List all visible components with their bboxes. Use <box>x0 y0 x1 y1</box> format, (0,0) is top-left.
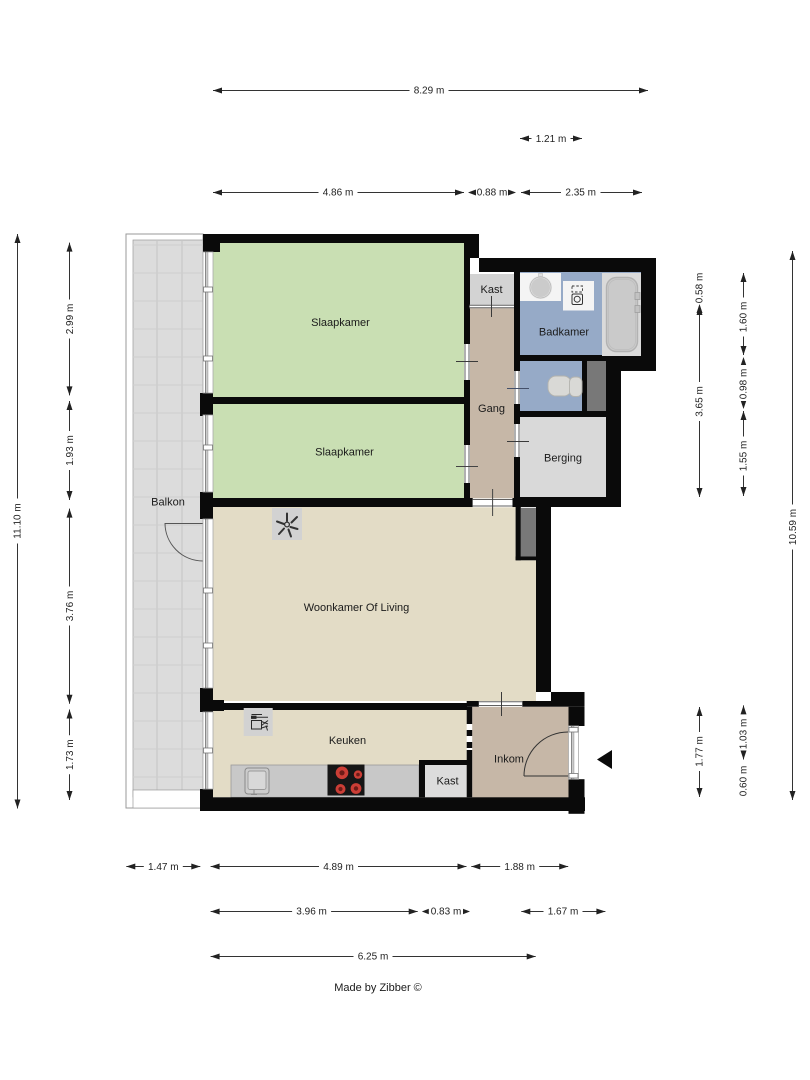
svg-text:8.29 m: 8.29 m <box>414 86 445 97</box>
svg-text:1.03 m: 1.03 m <box>739 719 750 750</box>
svg-text:4.86 m: 4.86 m <box>323 188 354 199</box>
svg-text:0.83 m: 0.83 m <box>431 907 462 918</box>
svg-text:1.60 m: 1.60 m <box>739 302 750 333</box>
svg-text:Balkon: Balkon <box>151 497 185 509</box>
svg-text:0.60 m: 0.60 m <box>739 766 750 797</box>
svg-text:1.21 m: 1.21 m <box>536 134 567 145</box>
svg-text:Gang: Gang <box>478 403 505 415</box>
svg-text:Made by Zibber ©: Made by Zibber © <box>334 982 422 994</box>
svg-text:0.58 m: 0.58 m <box>695 273 706 304</box>
svg-text:Kast: Kast <box>480 284 502 296</box>
svg-text:1.67 m: 1.67 m <box>548 907 579 918</box>
svg-text:Slaapkamer: Slaapkamer <box>315 447 374 459</box>
svg-text:1.88 m: 1.88 m <box>504 862 535 873</box>
svg-text:Berging: Berging <box>544 453 582 465</box>
svg-text:2.35 m: 2.35 m <box>565 188 596 199</box>
svg-text:10.59 m: 10.59 m <box>788 509 799 545</box>
svg-text:Inkom: Inkom <box>494 753 524 765</box>
svg-text:Keuken: Keuken <box>329 735 366 747</box>
svg-text:3.76 m: 3.76 m <box>65 591 76 622</box>
svg-text:Slaapkamer: Slaapkamer <box>311 317 370 329</box>
svg-text:3.96 m: 3.96 m <box>296 907 327 918</box>
svg-text:11.10 m: 11.10 m <box>13 503 24 538</box>
svg-text:Badkamer: Badkamer <box>539 327 589 339</box>
svg-text:Kast: Kast <box>436 775 458 787</box>
svg-text:2.99 m: 2.99 m <box>65 304 76 335</box>
svg-text:0.98 m: 0.98 m <box>739 369 750 400</box>
svg-text:6.25 m: 6.25 m <box>358 952 389 963</box>
svg-text:Woonkamer Of Living: Woonkamer Of Living <box>304 602 410 614</box>
svg-text:4.89 m: 4.89 m <box>323 862 354 873</box>
svg-text:0.88 m: 0.88 m <box>477 188 508 199</box>
svg-text:1.47 m: 1.47 m <box>148 862 179 873</box>
svg-text:1.73 m: 1.73 m <box>65 739 76 770</box>
svg-text:1.77 m: 1.77 m <box>695 736 706 767</box>
svg-text:1.55 m: 1.55 m <box>739 441 750 472</box>
svg-text:3.65 m: 3.65 m <box>695 386 706 417</box>
svg-text:1.93 m: 1.93 m <box>65 435 76 466</box>
